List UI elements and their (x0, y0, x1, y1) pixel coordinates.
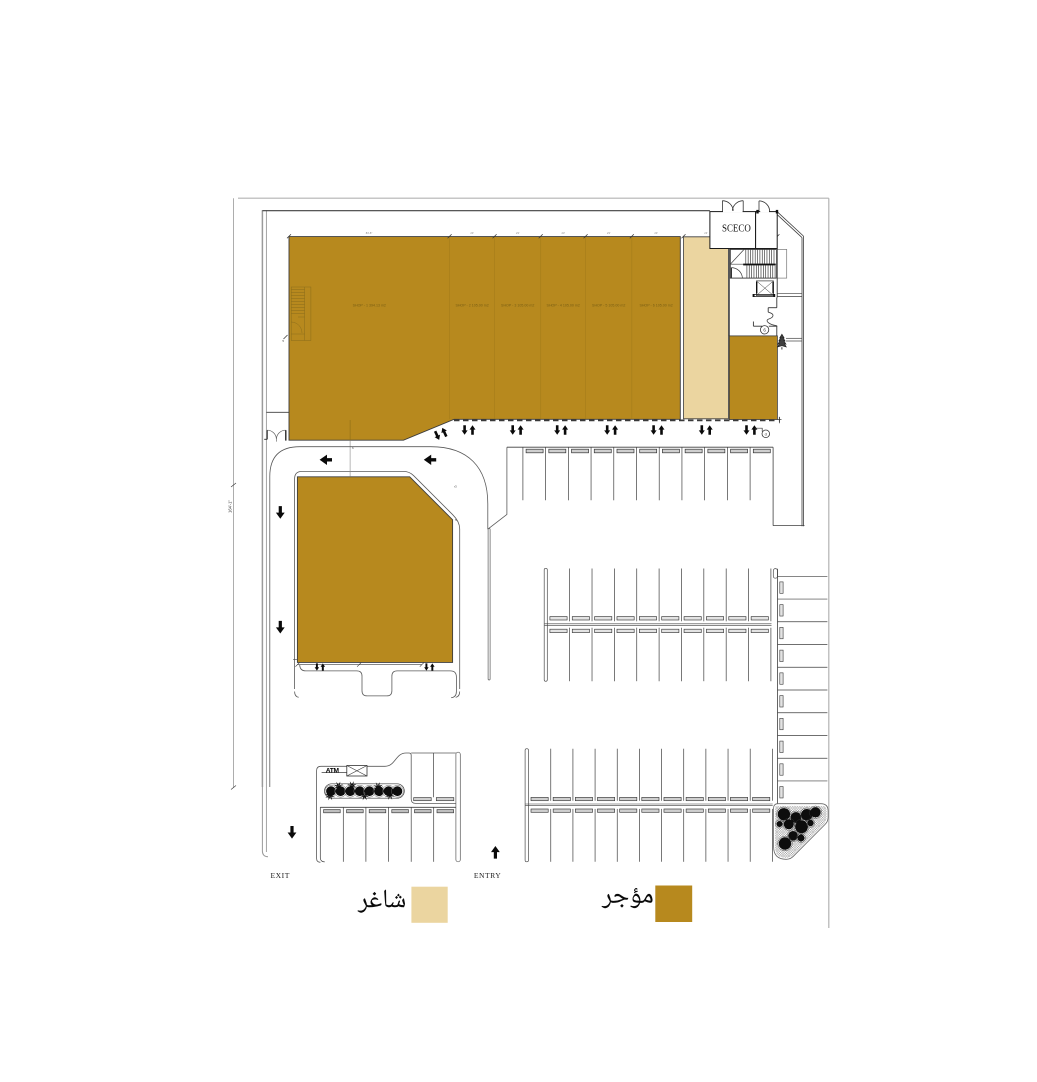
svg-text:164'-1": 164'-1" (228, 499, 233, 513)
svg-text:SHOP - 5 105.00 m2: SHOP - 5 105.00 m2 (592, 304, 625, 308)
svg-text:ATM: ATM (326, 767, 340, 774)
svg-text:r3: r3 (454, 485, 457, 489)
svg-text:d: d (765, 431, 767, 436)
svg-text:23': 23' (654, 231, 658, 235)
svg-text:SHOP - 1 394.13 m2: SHOP - 1 394.13 m2 (353, 304, 386, 308)
svg-text:SHOP - 3 105.00 m2: SHOP - 3 105.00 m2 (501, 304, 534, 308)
svg-text:23': 23' (704, 231, 708, 235)
svg-text:84'-8": 84'-8" (366, 231, 373, 235)
svg-text:23': 23' (516, 231, 520, 235)
svg-text:SHOP - 2 105.00 m2: SHOP - 2 105.00 m2 (455, 304, 488, 308)
svg-text:SCECO: SCECO (722, 224, 751, 235)
svg-text:23': 23' (470, 231, 474, 235)
svg-text:ENTRY: ENTRY (474, 871, 501, 880)
svg-text:SHOP - 4 105.00 m2: SHOP - 4 105.00 m2 (547, 304, 580, 308)
svg-text:EXIT: EXIT (271, 871, 290, 880)
svg-text:SHOP - 6 105.00 m2: SHOP - 6 105.00 m2 (639, 304, 672, 308)
svg-text:23': 23' (562, 231, 566, 235)
svg-text:23': 23' (607, 231, 611, 235)
